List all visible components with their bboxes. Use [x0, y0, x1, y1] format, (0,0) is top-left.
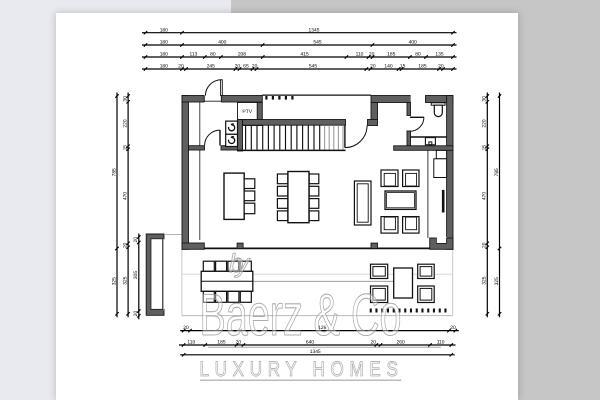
svg-text:470: 470	[123, 192, 129, 200]
svg-text:545: 545	[313, 40, 321, 46]
svg-text:LUXURY HOMES: LUXURY HOMES	[200, 358, 404, 381]
svg-text:400: 400	[218, 40, 226, 46]
svg-text:245: 245	[207, 64, 215, 70]
svg-text:185: 185	[418, 64, 426, 70]
svg-text:20: 20	[183, 325, 189, 331]
svg-text:135: 135	[435, 52, 443, 58]
svg-text:20: 20	[178, 64, 184, 70]
svg-text:20: 20	[133, 237, 139, 243]
svg-text:470: 470	[482, 192, 488, 200]
svg-text:20: 20	[235, 64, 241, 70]
svg-text:180: 180	[160, 40, 168, 46]
svg-text:20: 20	[252, 64, 258, 70]
svg-text:20: 20	[370, 64, 376, 70]
svg-text:80: 80	[210, 52, 216, 58]
svg-text:180: 180	[160, 27, 168, 33]
svg-text:785: 785	[111, 168, 117, 176]
svg-text:15: 15	[123, 145, 129, 151]
svg-text:220: 220	[123, 119, 129, 127]
svg-text:305: 305	[133, 271, 139, 279]
svg-text:325: 325	[123, 276, 129, 284]
svg-text:20: 20	[482, 242, 488, 248]
svg-text:1345: 1345	[310, 349, 321, 355]
svg-text:180: 180	[160, 52, 168, 58]
svg-text:1345: 1345	[309, 27, 320, 33]
svg-text:208: 208	[238, 52, 246, 58]
svg-text:545: 545	[309, 64, 317, 70]
svg-text:180: 180	[160, 64, 168, 70]
svg-text:20: 20	[438, 64, 444, 70]
svg-text:20: 20	[369, 52, 375, 58]
svg-text:140: 140	[384, 64, 392, 70]
svg-text:20: 20	[133, 311, 139, 317]
svg-text:785: 785	[494, 168, 500, 176]
svg-text:30: 30	[123, 96, 129, 102]
svg-text:20: 20	[123, 242, 129, 248]
svg-text:Baerz & Co: Baerz & Co	[200, 282, 402, 348]
svg-text:325: 325	[482, 276, 488, 284]
svg-text:400: 400	[409, 40, 417, 46]
svg-text:PTV: PTV	[242, 109, 252, 115]
svg-text:by: by	[229, 248, 251, 278]
svg-text:15: 15	[400, 64, 406, 70]
svg-text:65: 65	[243, 64, 249, 70]
svg-text:110: 110	[356, 52, 364, 58]
svg-text:185: 185	[387, 52, 395, 58]
svg-text:415: 415	[301, 52, 309, 58]
svg-text:325: 325	[494, 277, 500, 285]
svg-text:113: 113	[190, 52, 198, 58]
svg-text:20: 20	[450, 325, 456, 331]
svg-text:30: 30	[482, 96, 488, 102]
svg-text:15: 15	[482, 145, 488, 151]
svg-text:325: 325	[111, 277, 117, 285]
svg-text:220: 220	[482, 119, 488, 127]
svg-text:110: 110	[437, 340, 445, 346]
svg-text:110: 110	[187, 340, 195, 346]
svg-text:80: 80	[415, 52, 421, 58]
